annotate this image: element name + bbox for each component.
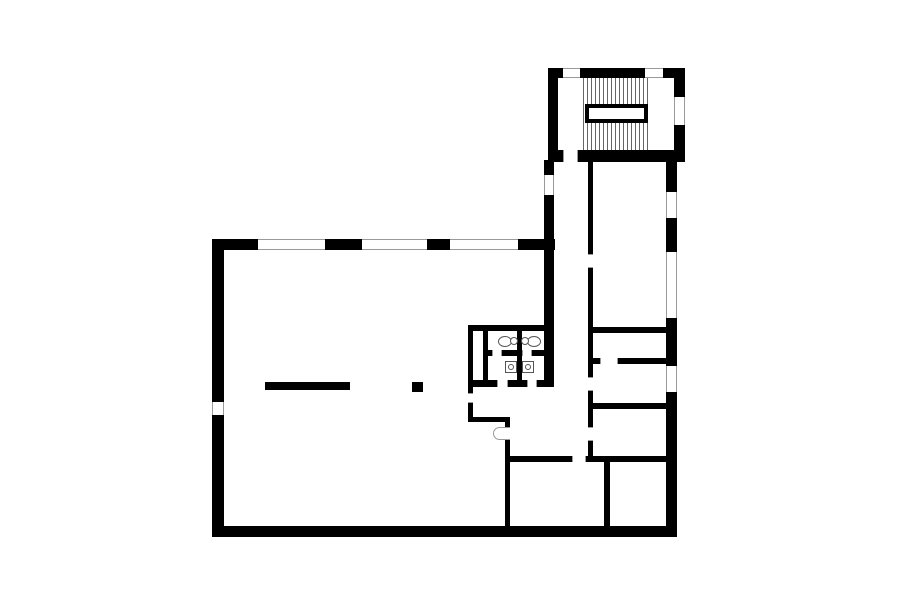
toilet-right-tank <box>521 337 529 345</box>
toilet-left-tank <box>510 337 518 345</box>
wall-bottom <box>212 526 677 537</box>
window-wing-east-1 <box>666 192 677 218</box>
window-wing-east-2 <box>666 252 677 318</box>
window-tower-top-2 <box>645 68 663 78</box>
door-corridor-room3 <box>588 377 593 391</box>
bigroom-counter-bar <box>265 382 350 390</box>
door-divider-d <box>572 456 586 462</box>
wall-bottomrooms-divider <box>604 462 610 526</box>
wall-bigroom-left <box>212 239 224 537</box>
wall-bigroom-top-seg1 <box>212 239 258 250</box>
door-swing-arc <box>493 427 506 440</box>
wall-wc-inner-west <box>483 331 488 387</box>
window-wing-east-3 <box>666 366 677 392</box>
door-corridor-room1 <box>588 254 593 268</box>
wall-tower-top-seg2 <box>580 68 645 78</box>
wall-corridor-east <box>588 162 593 462</box>
window-top-3 <box>450 239 518 250</box>
wall-room-divider-a <box>593 327 666 333</box>
door-tower-to-corridor <box>563 150 578 162</box>
wall-wc-bottom <box>468 380 554 387</box>
sink-left-basin <box>508 364 514 370</box>
door-wc-mid-left <box>492 350 502 356</box>
door-wc-west <box>468 393 473 403</box>
wall-lobby-horiz <box>468 417 510 422</box>
wall-room-divider-d <box>508 456 666 462</box>
wall-wc-west <box>468 325 473 422</box>
floor-plan <box>0 0 900 604</box>
window-left-wall <box>212 402 224 415</box>
bigroom-column <box>412 382 423 392</box>
toilet-right-bowl <box>527 336 541 347</box>
window-tower-top-1 <box>563 68 580 78</box>
window-tower-right <box>674 97 685 125</box>
window-top-2 <box>362 239 427 250</box>
door-divider-b <box>600 358 618 364</box>
wall-room-divider-c <box>593 403 666 409</box>
door-corridor-room4 <box>588 427 593 441</box>
window-wing-west <box>544 175 554 195</box>
wall-tower-left <box>548 68 558 160</box>
sink-right-basin <box>525 364 531 370</box>
wall-wc-top <box>468 325 544 331</box>
door-wc-bottom-right <box>527 380 537 387</box>
door-wc-mid-right <box>522 350 532 356</box>
wall-bigroom-top-seg3 <box>427 239 450 250</box>
door-wc-bottom-left <box>497 380 508 387</box>
stair-void <box>585 104 648 123</box>
wall-bigroom-top-seg2 <box>325 239 362 250</box>
window-top-1 <box>258 239 325 250</box>
